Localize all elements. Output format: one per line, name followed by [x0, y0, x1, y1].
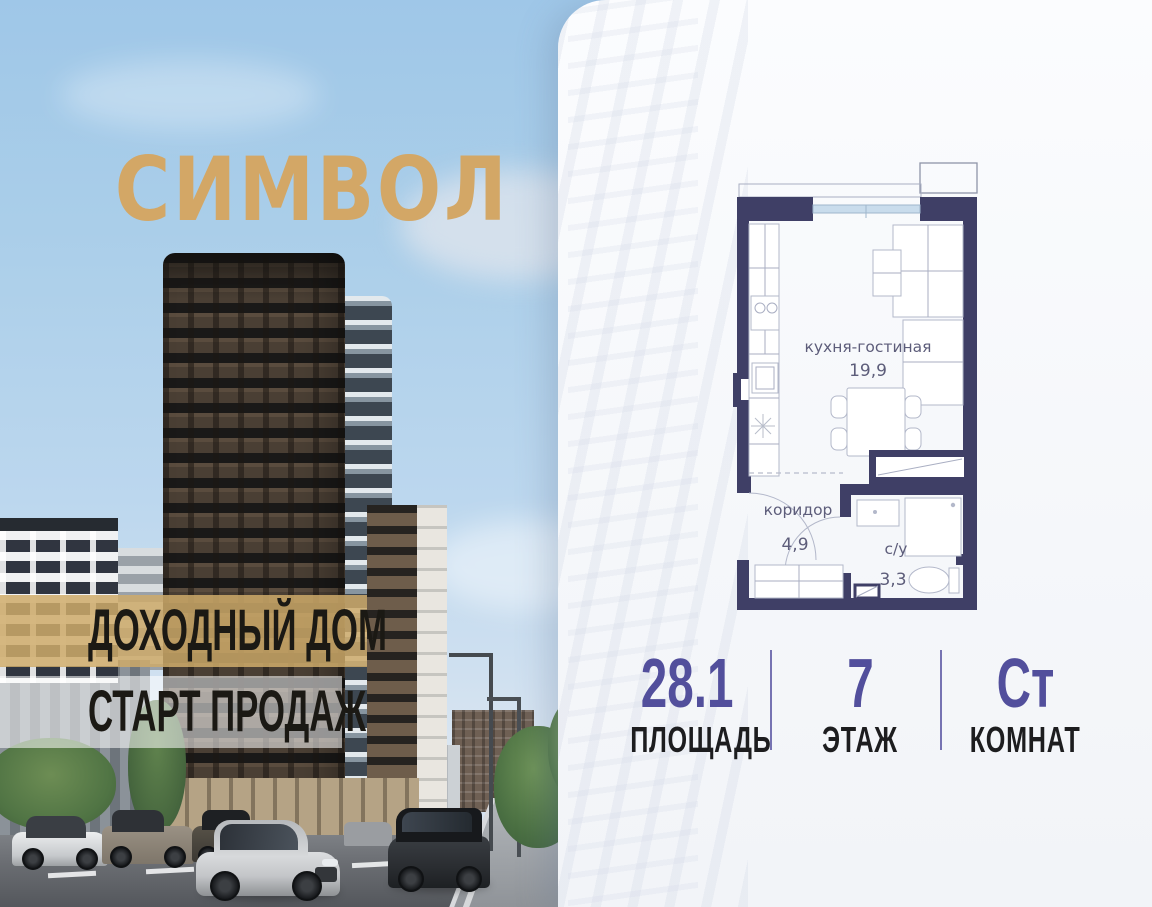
- parked-car: [344, 814, 392, 846]
- balcony-outline: [920, 163, 977, 193]
- stat-floor-label: ЭТАЖ: [822, 722, 898, 758]
- stat-divider: [770, 650, 772, 750]
- cloud: [60, 60, 320, 130]
- main-tower: [163, 253, 345, 838]
- toilet: [909, 567, 949, 593]
- brand-logo: СИМВОЛ: [115, 146, 444, 234]
- silver-sedan: [196, 820, 340, 896]
- room-label-kitchen-living: кухня-гостиная: [805, 338, 932, 356]
- banner-income-house-label: ДОХОДНЫЙ ДОМ: [88, 602, 387, 660]
- stat-divider: [940, 650, 942, 750]
- ghost-building-watermark: [558, 0, 748, 907]
- room-label-bathroom: с/у: [885, 540, 908, 558]
- stat-rooms-label: КОМНАТ: [970, 722, 1081, 758]
- room-area-corridor: 4,9: [781, 535, 808, 555]
- parked-car: [102, 810, 194, 864]
- dark-minivan: [388, 808, 490, 888]
- dining-table: [847, 388, 905, 456]
- info-panel: кухня-гостиная 19,9 коридор 4,9 с/у 3,3 …: [558, 0, 1152, 907]
- banner-sales-start: СТАРТ ПРОДАЖ: [0, 676, 342, 748]
- banner-sales-start-label: СТАРТ ПРОДАЖ: [88, 683, 366, 741]
- floorplan: кухня-гостиная 19,9 коридор 4,9 с/у 3,3: [725, 148, 990, 622]
- banner-income-house: ДОХОДНЫЙ ДОМ: [0, 595, 367, 667]
- bath-sink: [857, 500, 899, 526]
- room-area-bathroom: 3,3: [879, 570, 906, 590]
- listing-card[interactable]: СИМВОЛ ДОХОДНЫЙ ДОМ СТАРТ ПРОДАЖ: [0, 0, 1152, 907]
- stat-rooms: Ст КОМНАТ: [945, 648, 1105, 758]
- room-area-kitchen-living: 19,9: [849, 361, 887, 381]
- room-label-corridor: коридор: [764, 501, 833, 519]
- stat-floor-value: 7: [847, 648, 873, 718]
- stat-rooms-value: Ст: [996, 648, 1054, 718]
- parked-car: [12, 816, 108, 866]
- stat-floor: 7 ЭТАЖ: [780, 648, 940, 758]
- stove: [751, 296, 779, 330]
- tower-right-white: [417, 505, 447, 838]
